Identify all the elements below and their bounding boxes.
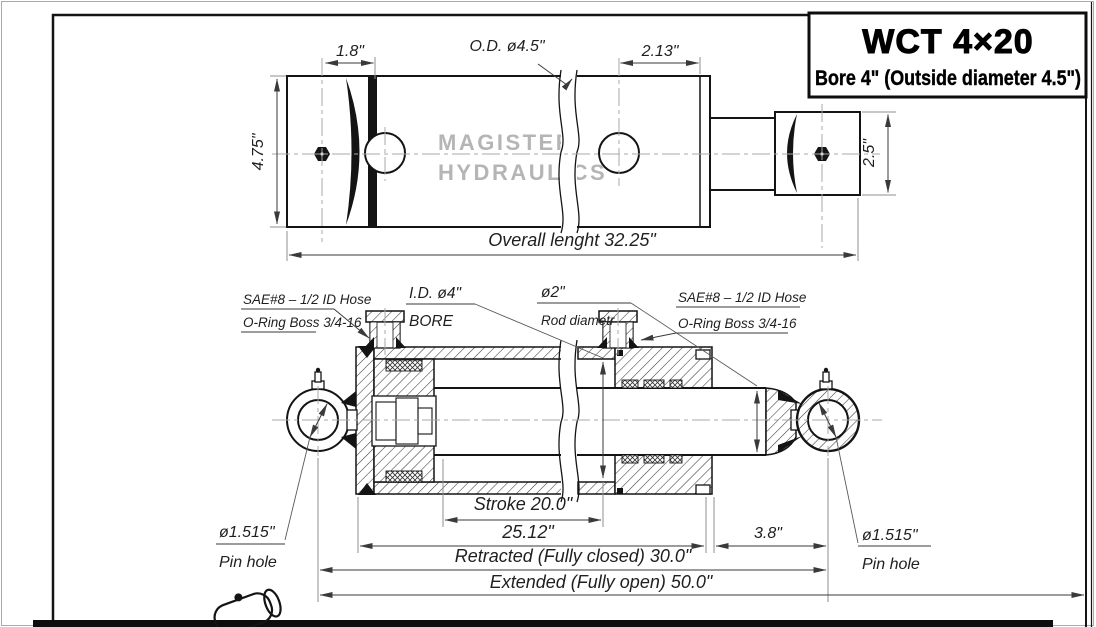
dim-2-13-text: 2.13" (641, 43, 680, 60)
barrel-wall-bottom (578, 482, 615, 494)
watermark-line2: HYDRAULICS (438, 160, 607, 185)
label-od-text: O.D. ø4.5" (469, 38, 545, 55)
dim-3-8-text: 3.8" (754, 525, 783, 542)
rod-line1: ø2" (541, 284, 566, 301)
drawing-sheet: MAGISTER HYDRAULICS 4.75" 1.8" O.D. ø4.5… (0, 0, 1096, 627)
watermark-line1: MAGISTER (438, 130, 574, 155)
dim-4-75-text: 4.75" (250, 132, 267, 170)
model-subtitle: Bore 4" (Outside diameter 4.5") (815, 67, 1081, 90)
bore-line1: I.D. ø4" (409, 285, 463, 302)
dim-extended-text: Extended (Fully open) 50.0" (490, 572, 714, 592)
dim-1-8-text: 1.8" (336, 43, 365, 60)
dim-3-8: 3.8" (714, 497, 826, 553)
section-view-dimensions: SAE#8 – 1/2 ID Hose O-Ring Boss 3/4-16 I… (216, 284, 1084, 602)
model-title: WCT 4×20 (862, 23, 1033, 61)
piston-rod-joint (372, 396, 436, 446)
grease-zerk-right (820, 368, 832, 389)
title-block: WCT 4×20 Bore 4" (Outside diameter 4.5") (809, 13, 1086, 97)
dim-4-75: 4.75" (250, 76, 286, 227)
piston-seal-top (386, 360, 422, 371)
sae-right-line1: SAE#8 – 1/2 ID Hose (678, 290, 806, 305)
external-view: MAGISTER HYDRAULICS (272, 58, 880, 248)
barrel-wall-top (374, 347, 562, 359)
bore-line2: BORE (409, 313, 454, 330)
dim-2-13: 2.13" (621, 43, 701, 74)
gland-seal (670, 380, 682, 388)
section-view (272, 308, 882, 502)
gland-retainer-notch (696, 485, 710, 494)
rod-line2: Rod diametr (541, 313, 615, 328)
gland-lock-detail (617, 488, 623, 494)
dim-extended: Extended (Fully open) 50.0" (320, 572, 1084, 595)
dim-2-5-text: 2.5" (861, 138, 878, 168)
grease-zerk-left (312, 368, 324, 389)
pin-left-line2: Pin hole (219, 554, 277, 571)
pin-left-line1: ø1.515" (219, 524, 276, 541)
label-sae-left: SAE#8 – 1/2 ID Hose O-Ring Boss 3/4-16 (241, 292, 371, 338)
gland-seal (622, 455, 638, 463)
cylinder-drawing: MAGISTER HYDRAULICS 4.75" 1.8" O.D. ø4.5… (0, 0, 1096, 627)
barrel-wall-bottom (374, 482, 562, 494)
gland-seal (670, 455, 682, 463)
sae-left-line1: SAE#8 – 1/2 ID Hose (243, 292, 371, 307)
pin-right-line2: Pin hole (862, 556, 920, 573)
gland-seal (644, 380, 664, 388)
label-sae-right: SAE#8 – 1/2 ID Hose O-Ring Boss 3/4-16 (641, 290, 806, 340)
gland-seal (644, 455, 664, 463)
pin-right-line1: ø1.515" (862, 527, 919, 544)
bottom-bar (33, 620, 1053, 627)
dim-retracted-text: Retracted (Fully closed) 30.0" (455, 546, 693, 566)
barrel-wall-top (578, 347, 615, 359)
sae-right-line2: O-Ring Boss 3/4-16 (678, 316, 797, 331)
dim-stroke-text: Stroke 20.0" (474, 494, 574, 514)
dim-1-8: 1.8" (326, 43, 376, 79)
gland-retainer-notch (696, 350, 710, 359)
dim-25-12-text: 25.12" (501, 522, 555, 542)
piston-seal-bottom (386, 471, 422, 482)
gland-seal (622, 380, 638, 388)
dim-overall-text: Overall lenght 32.25" (488, 230, 657, 250)
